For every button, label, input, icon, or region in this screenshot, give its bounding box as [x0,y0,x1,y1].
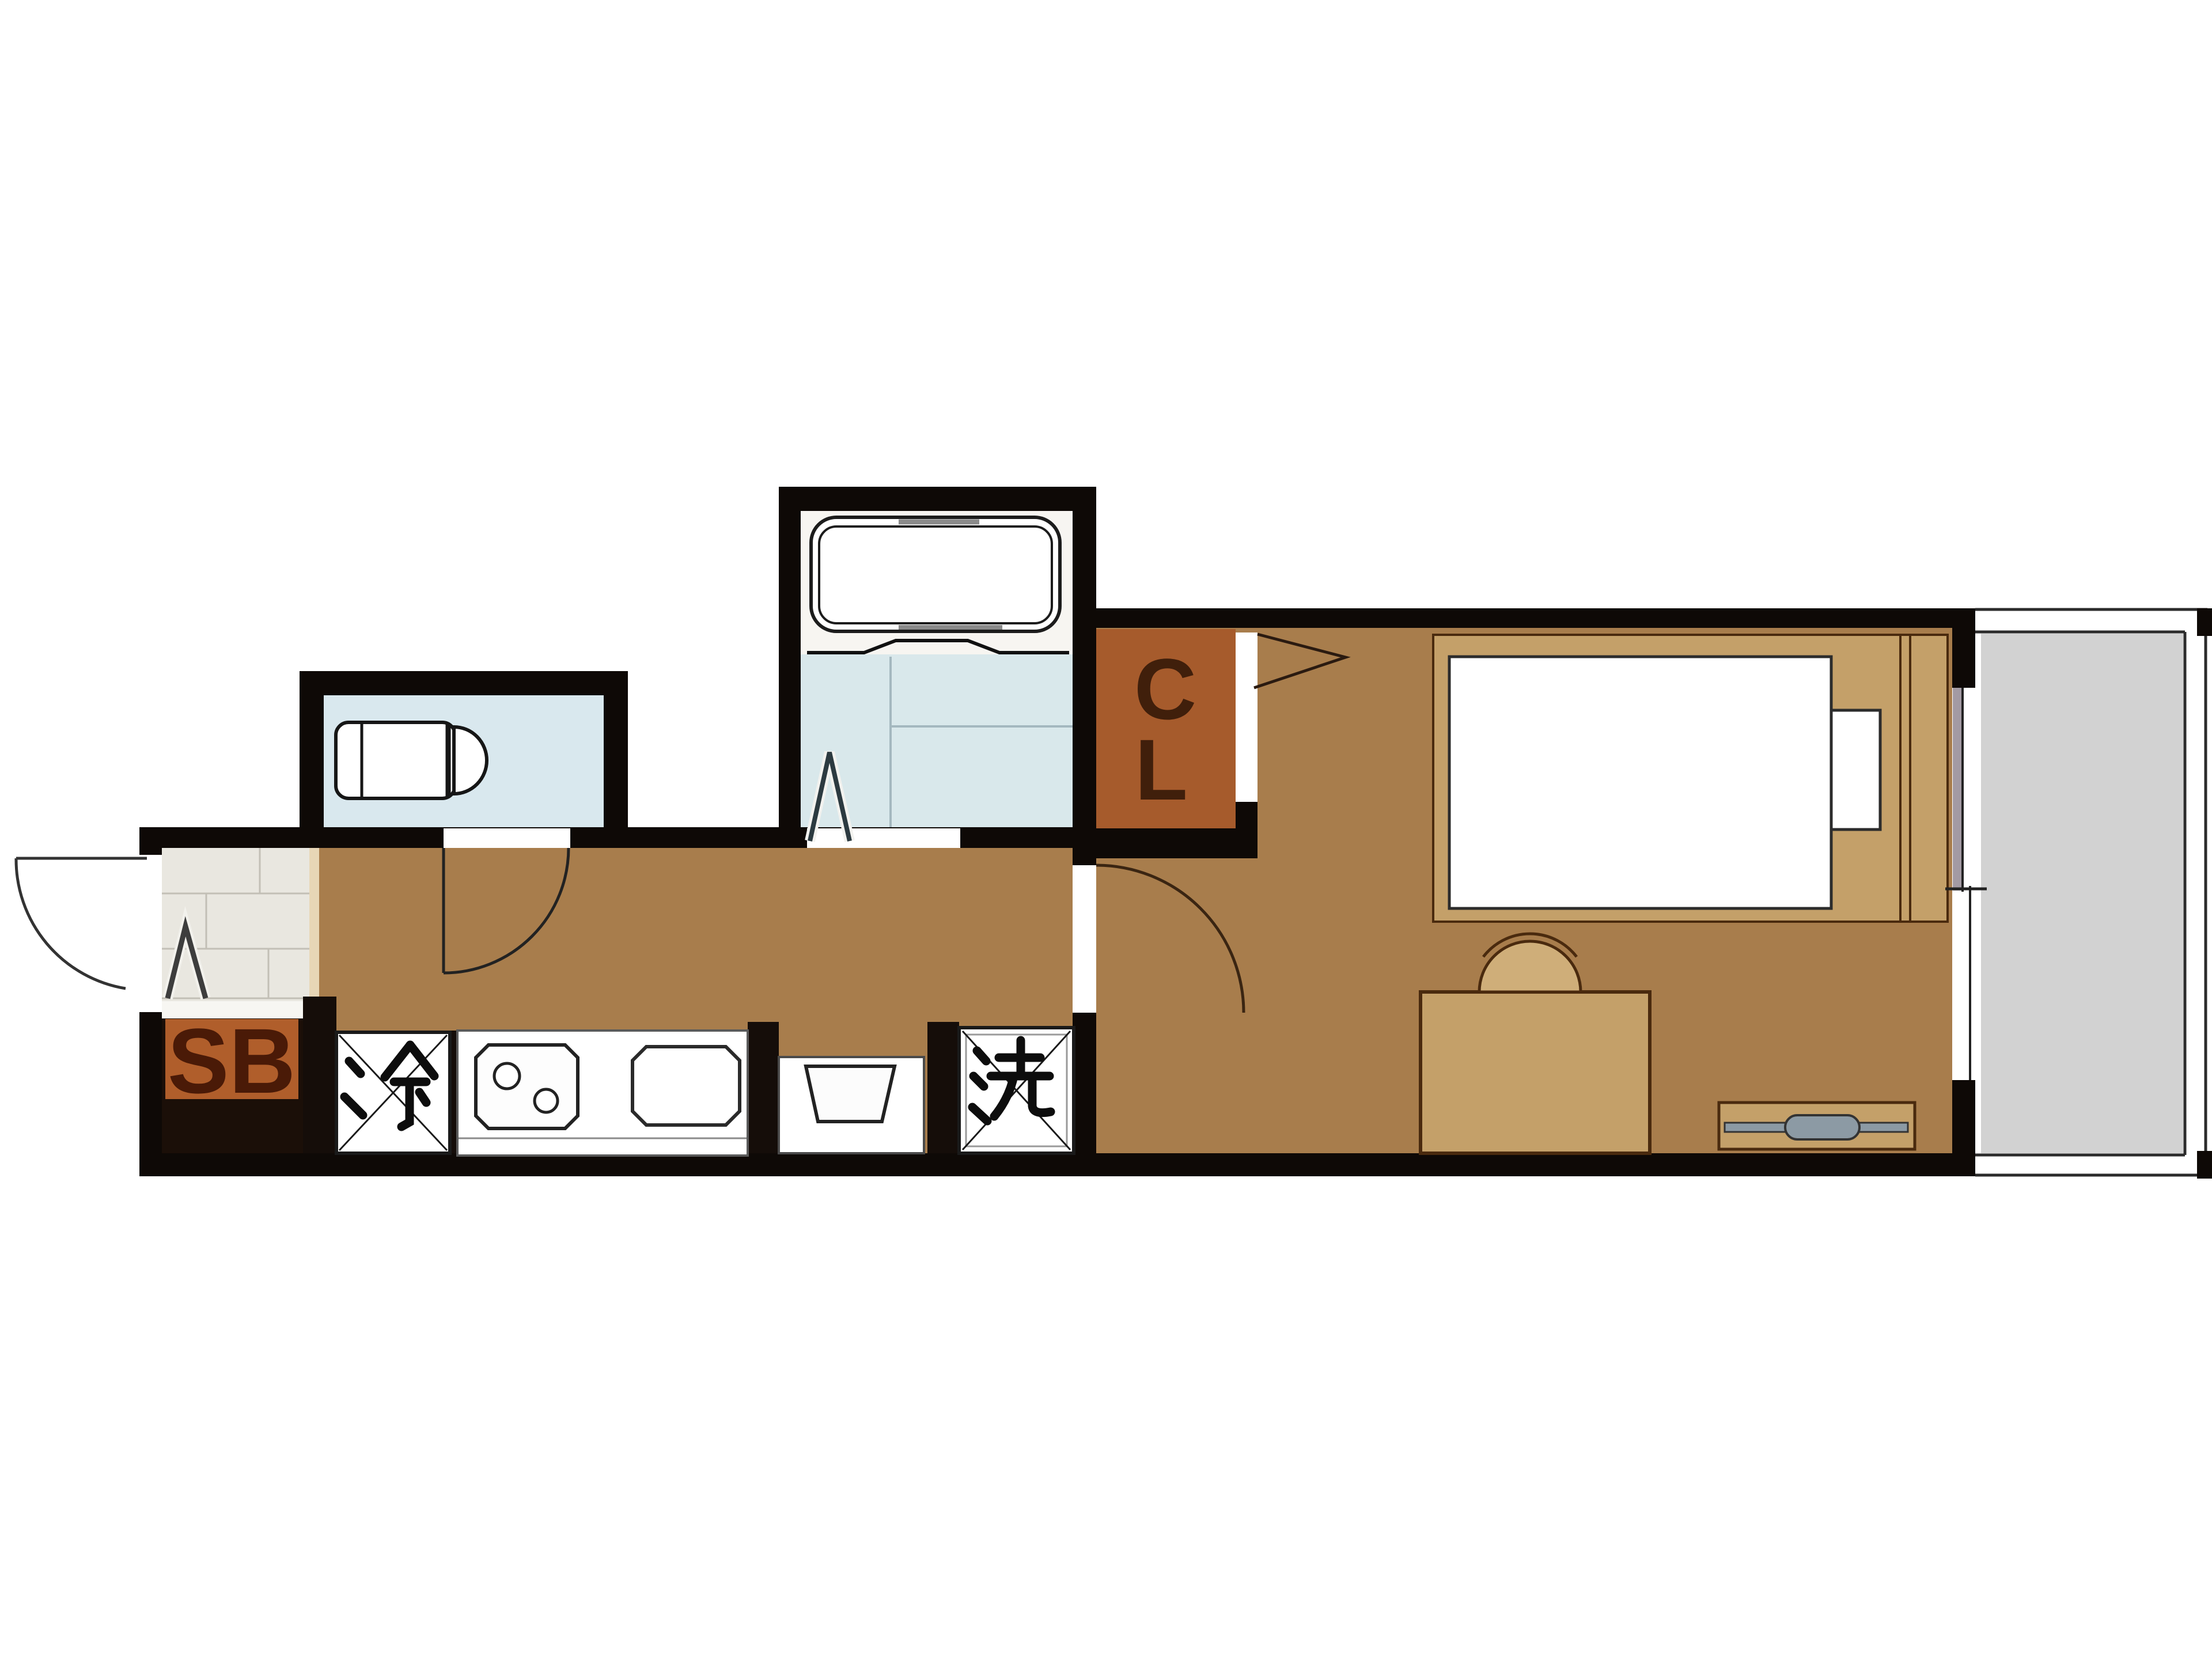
svg-text:SB: SB [168,1009,296,1112]
svg-text:L: L [1135,721,1188,818]
